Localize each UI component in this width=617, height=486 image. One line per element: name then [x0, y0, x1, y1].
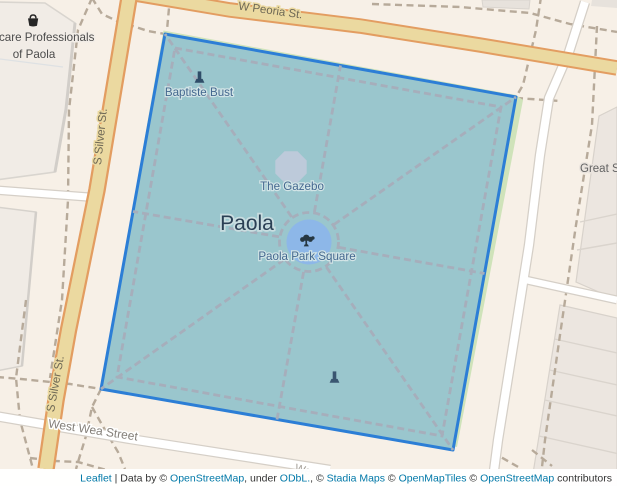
svg-text:of Paola: of Paola [13, 48, 56, 61]
svg-text:Great Scho: Great Scho [580, 163, 617, 175]
svg-text:Paola: Paola [220, 212, 274, 235]
svg-text:Leaflet | Data by © OpenStreet: Leaflet | Data by © OpenStreetMap, under… [80, 473, 612, 485]
svg-text:care Professionals: care Professionals [0, 31, 95, 44]
svg-text:Paola Park Square: Paola Park Square [258, 250, 355, 263]
svg-text:Baptiste Bust: Baptiste Bust [165, 86, 234, 99]
svg-text:The Gazebo: The Gazebo [260, 180, 324, 193]
